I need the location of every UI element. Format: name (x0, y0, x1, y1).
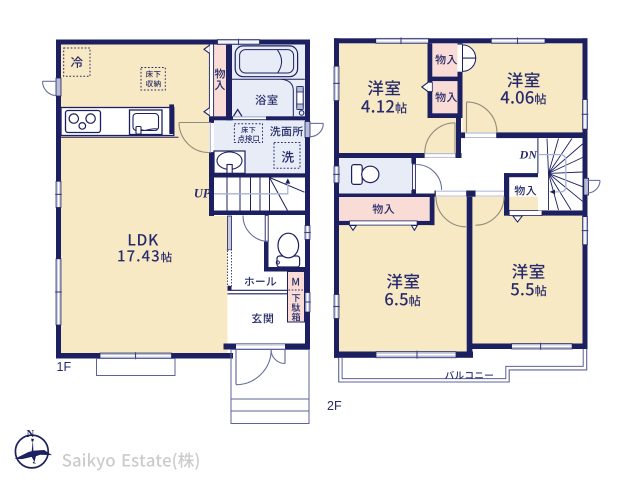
svg-text:1F: 1F (57, 360, 72, 374)
svg-text:DN: DN (519, 148, 539, 162)
svg-text:2F: 2F (327, 399, 342, 413)
svg-text:N: N (27, 429, 35, 440)
svg-text:UP: UP (194, 187, 211, 201)
